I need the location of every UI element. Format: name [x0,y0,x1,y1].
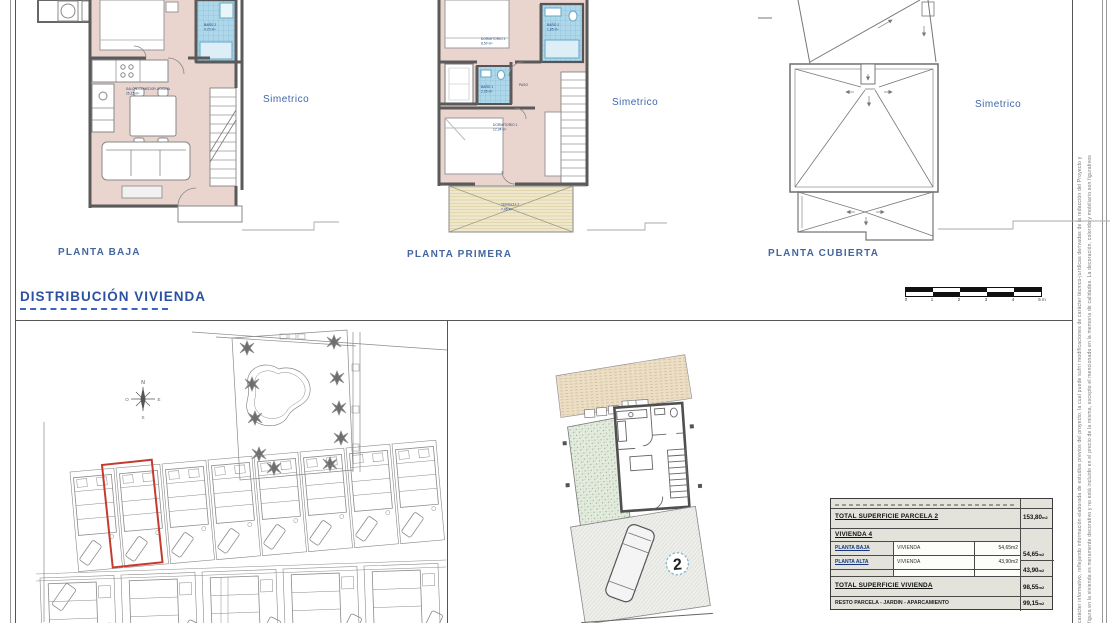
simetrico-label-baja: Simetrico [263,94,309,105]
shower-icon [545,40,579,58]
table-row-vivienda-header: VIVIENDA 4 [835,531,872,538]
porch-step [178,206,242,222]
main-roof [790,64,938,192]
clipped-header-row [835,504,1014,506]
tree-icon [245,377,259,391]
table-row-total-parcela-value: 153,80m2 [1023,514,1048,521]
upper-roof [798,0,936,64]
tree-icon [332,401,346,415]
room-label: DORMITORIO 2 [481,37,506,41]
upper-house-row [70,440,445,571]
room-area: 12,34 m² [493,128,506,132]
compass-s: S [141,415,144,420]
compass-icon: N S E O [125,380,160,420]
car-icon [52,583,77,611]
table-row-alta-label: PLANTA ALTA [835,559,869,565]
planta-primera-label: PLANTA PRIMERA [407,249,512,260]
scale-tick: 0 [905,297,908,302]
room-label: PASO [519,83,528,87]
house-footprint [614,403,689,511]
room-label: BAÑO 2 [204,22,216,27]
side-disclaimer-line-2: figura en la vivienda es meramente decor… [1086,0,1096,623]
scale-tick: 1 [931,297,934,302]
compass-e: E [157,397,160,402]
room-area: 4,70 m² [204,28,216,32]
room-label: BAÑO 2 [547,22,559,27]
sofa-icon [102,142,190,180]
planta-cubierta-label: PLANTA CUBIERTA [768,248,879,259]
wardrobe-icon [545,112,563,176]
side-disclaimer-line-1: carácter informativo, reflejando informa… [1076,0,1086,623]
table-row-alta-total: 43,90m2 [1023,567,1044,574]
toilet-icon [569,11,577,21]
sheet-heading: DISTRIBUCIÓN VIVIENDA [20,289,206,304]
simetrico-label-primera: Simetrico [612,97,658,108]
table-row-baja-use: VIVIENDA [897,545,920,551]
scale-tick: 2 [958,297,961,302]
scale-bar-box [905,287,1042,297]
room-label: TERRAZA 2 [501,203,519,207]
subject-parcel-outline [102,460,162,568]
room-label: SALÓN-COMEDOR-COCINA [126,86,171,91]
table-row-baja-total: 54,65m2 [1023,551,1044,558]
table-row-total-vivienda-label: TOTAL SUPERFICIE VIVIENDA [835,582,933,589]
stairs-icon [210,88,236,186]
frame-line-left-outer [10,0,11,623]
parcel-number-badge: 2 [666,552,689,575]
table-row-baja-label: PLANTA BAJA [835,545,870,551]
section-divider [16,320,1072,321]
shower-icon [200,42,232,59]
tree-icon [267,461,281,475]
site-plan: N S E O [16,322,447,623]
lower-panel-divider [447,320,448,623]
tree-icon [334,431,348,445]
communal-garden [232,330,353,480]
room-area: 2,05 m² [481,90,493,94]
room-area: 7,05 m² [501,208,513,212]
table-row-alta-value: 43,90m2 [974,559,1018,565]
tree-icon [330,371,344,385]
plot-boundary-line [587,223,667,230]
tree-icon [240,341,254,355]
simetrico-label-cubierta: Simetrico [975,99,1021,110]
table-row-total-parcela-label: TOTAL SUPERFICIE PARCELA 2 [835,513,938,520]
room-label: DORMITORIO 1 [493,123,518,127]
footpath-lines [221,577,228,623]
planta-baja-label: PLANTA BAJA [58,247,141,258]
toilet-icon [220,3,233,18]
bathroom-1: BAÑO 1 2,05 m² [477,66,511,104]
lower-roof [798,192,933,240]
surface-area-table: TOTAL SUPERFICIE PARCELA 2 153,80m2 VIVI… [830,498,1053,610]
planta-primera-floorplan: DORMITORIO 2 8,50 m² BAÑO 2 1,85 m² BAÑO… [405,0,667,246]
washer-icon [58,1,78,21]
table-row-alta-use: VIVIENDA [897,559,920,565]
lower-house-row [40,563,444,623]
stairs-icon [561,72,587,186]
sink-icon [545,8,561,16]
planta-cubierta-roofplan [758,0,1110,246]
parcel-number: 2 [672,556,682,574]
parcel-2-plan: 2 [552,348,730,623]
bathroom-2: BAÑO 2 1,85 m² [541,4,583,62]
room-area: 1,85 m² [547,28,559,32]
table-row-baja-value: 54,65m2 [974,545,1018,551]
tv-unit-icon [122,186,162,198]
scale-tick: 5 m [1038,297,1046,302]
plot-boundary-line [242,222,339,230]
compass-n: N [141,380,145,386]
scale-tick: 3 [985,297,988,302]
scale-tick: 4 [1012,297,1015,302]
street-lines [192,332,447,350]
table-row-total-vivienda-value: 98,55m2 [1023,584,1044,591]
compass-o: O [125,397,129,402]
graphic-scale-bar: 0 1 2 3 4 5 m [905,284,1055,302]
room-label: BAÑO 1 [481,84,493,89]
terrace: TERRAZA 2 7,05 m² [449,186,573,232]
room-area: 25,15 m² [126,92,139,96]
table-row-resto-value: 99,15m2 [1023,600,1044,607]
heading-underline [20,308,168,310]
architectural-plan-sheet: BAÑO 2 4,70 m² [0,0,1110,623]
table-row-resto-label: RESTO PARCELA - JARDIN - APARCAMIENTO [835,600,949,606]
room-area: 8,50 m² [481,42,493,46]
bathroom: BAÑO 2 4,70 m² [196,0,236,62]
planta-baja-floorplan: BAÑO 2 4,70 m² [28,0,340,246]
tree-icon [248,411,262,425]
